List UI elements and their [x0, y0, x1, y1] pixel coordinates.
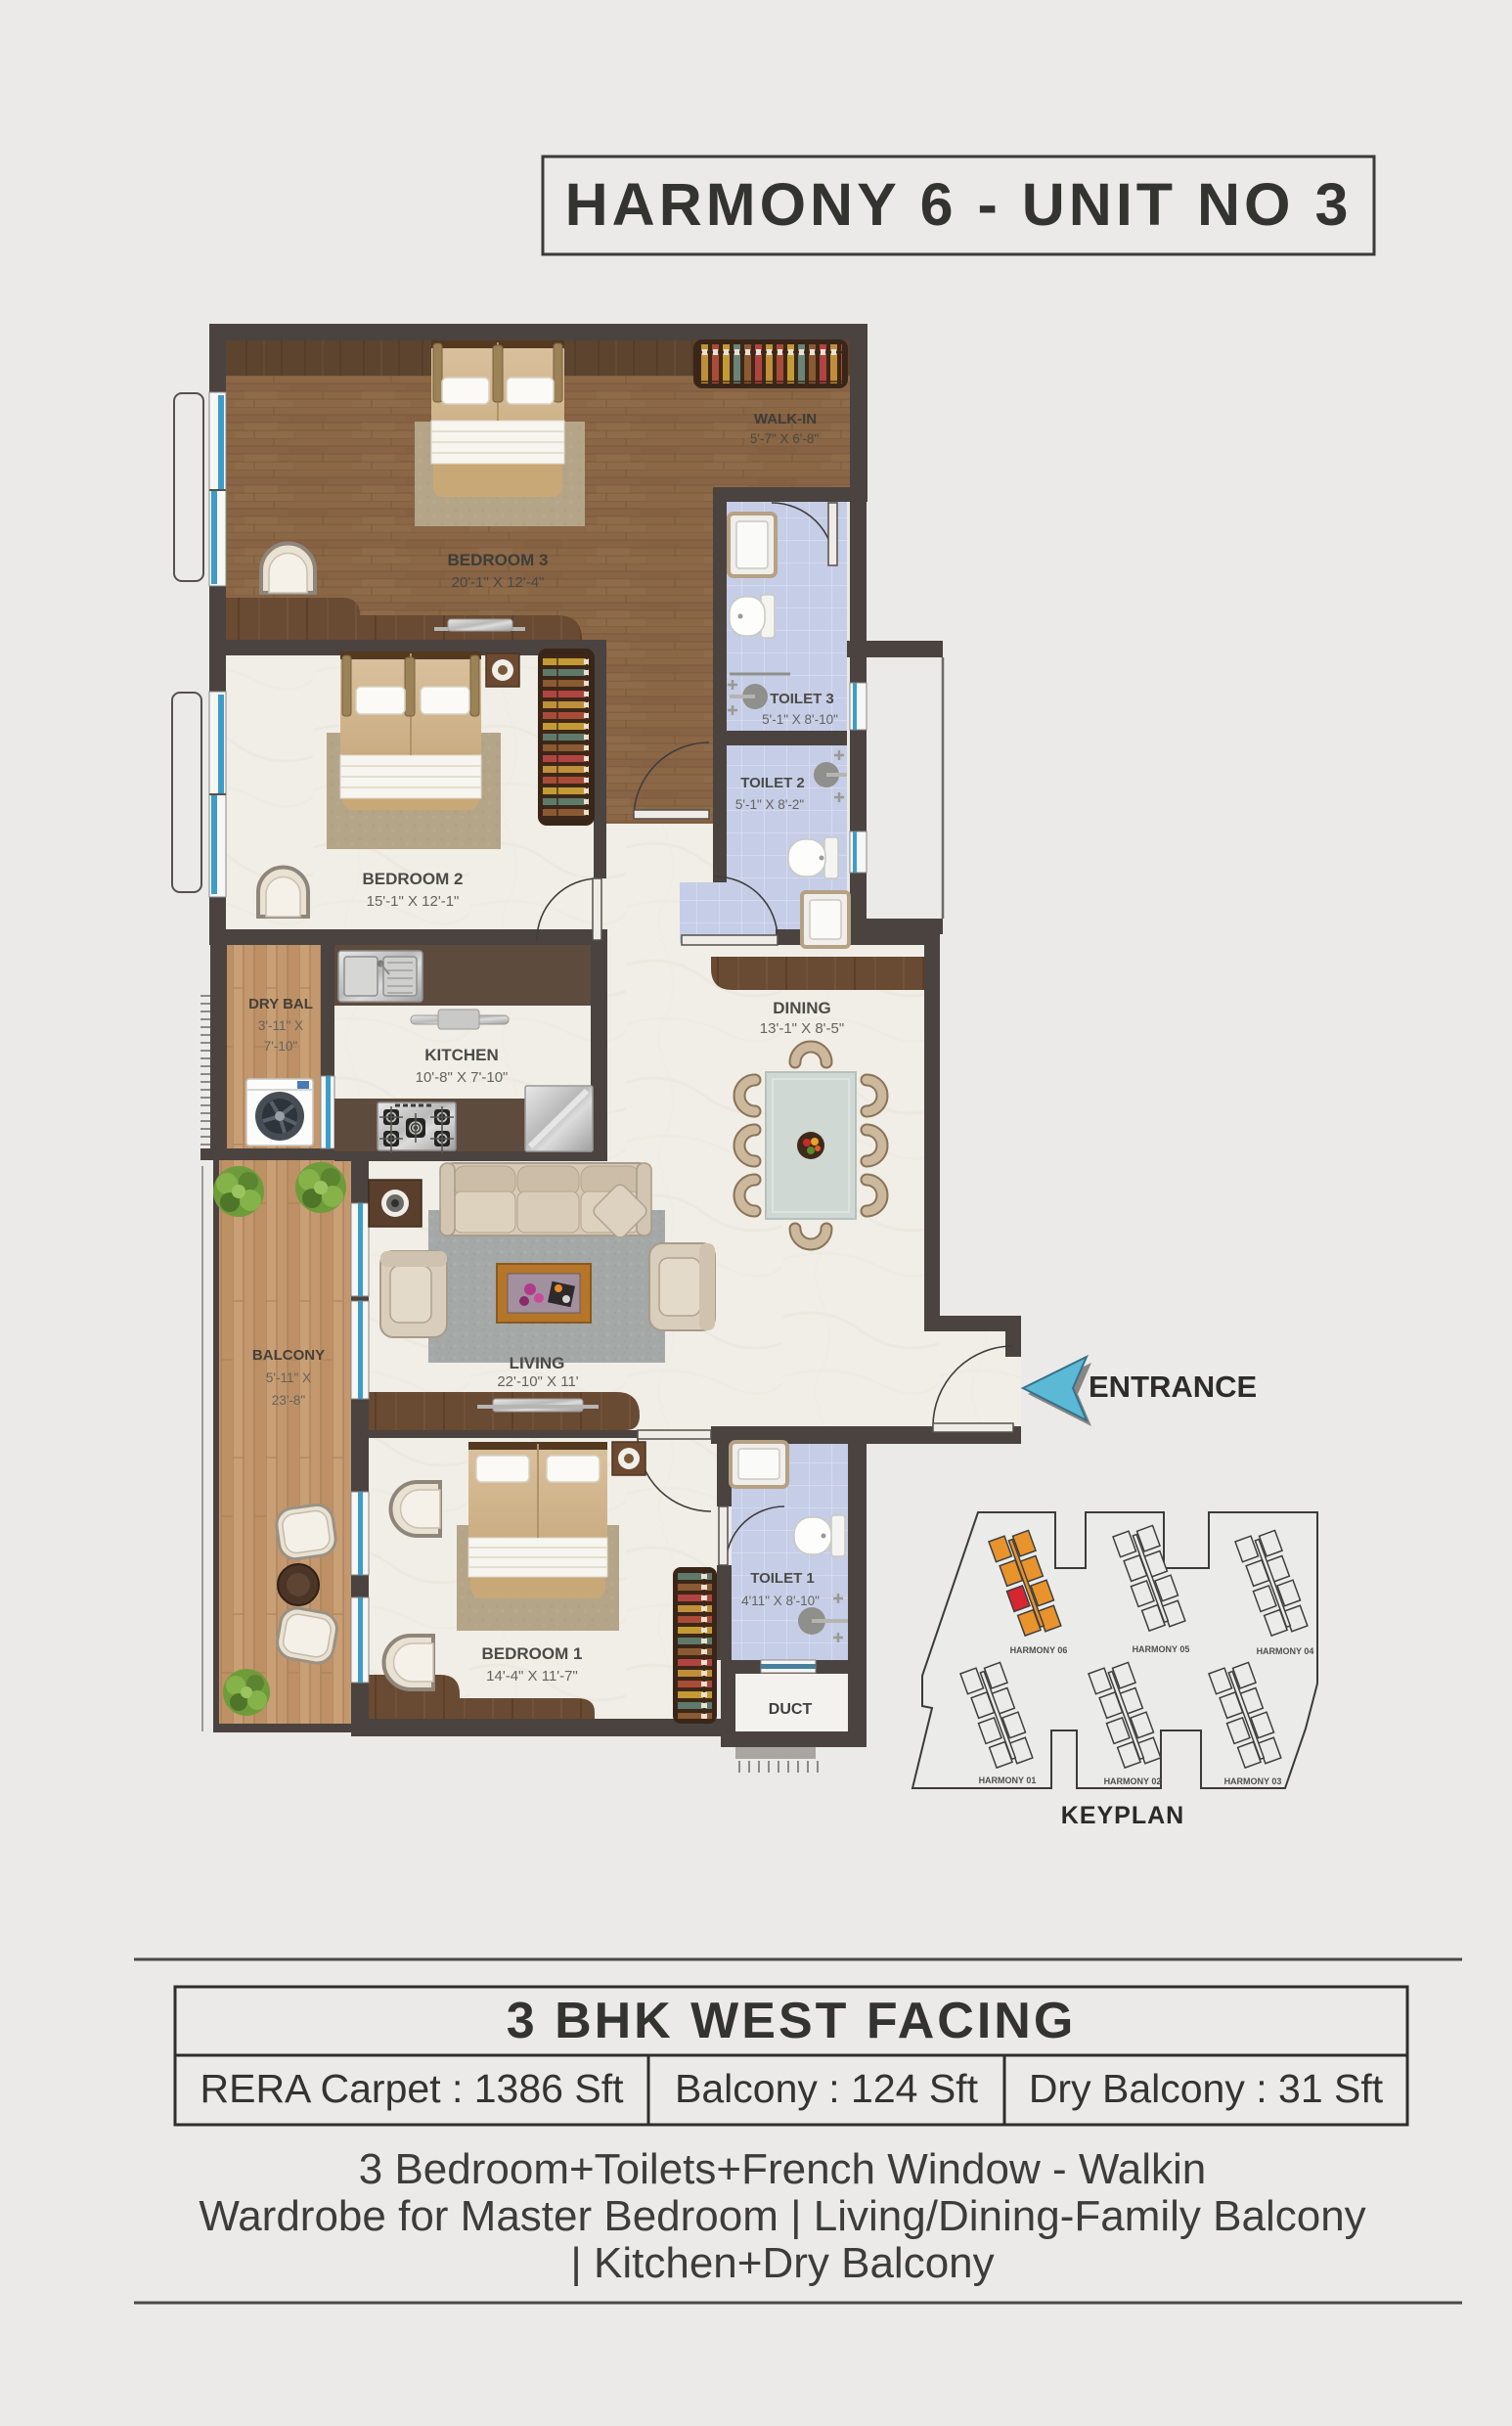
svg-text:4'11" X 8'-10": 4'11" X 8'-10": [741, 1594, 820, 1608]
svg-text:HARMONY 02: HARMONY 02: [1104, 1776, 1162, 1786]
svg-text:3 BHK WEST FACING: 3 BHK WEST FACING: [507, 1993, 1077, 2049]
svg-text:| Kitchen+Dry Balcony: | Kitchen+Dry Balcony: [570, 2239, 994, 2287]
svg-text:BEDROOM 1: BEDROOM 1: [482, 1644, 583, 1663]
svg-text:3'-11" X: 3'-11" X: [258, 1018, 303, 1033]
svg-text:HARMONY 6 - UNIT NO 3: HARMONY 6 - UNIT NO 3: [565, 171, 1353, 238]
svg-text:TOILET 2: TOILET 2: [740, 775, 805, 791]
svg-text:7'-10": 7'-10": [264, 1039, 298, 1054]
svg-text:13'-1" X 8'-5": 13'-1" X 8'-5": [760, 1020, 844, 1037]
svg-text:KITCHEN: KITCHEN: [424, 1046, 499, 1064]
svg-text:TOILET 3: TOILET 3: [770, 691, 834, 707]
svg-text:HARMONY 05: HARMONY 05: [1133, 1644, 1190, 1654]
svg-text:14'-4" X 11'-7": 14'-4" X 11'-7": [486, 1668, 578, 1685]
svg-text:HARMONY 01: HARMONY 01: [979, 1775, 1037, 1785]
svg-text:HARMONY 04: HARMONY 04: [1257, 1646, 1314, 1656]
svg-text:Dry Balcony : 31 Sft: Dry Balcony : 31 Sft: [1029, 2066, 1384, 2111]
svg-text:DRY BAL: DRY BAL: [248, 996, 313, 1012]
svg-text:HARMONY 06: HARMONY 06: [1010, 1645, 1068, 1655]
svg-text:5'-7" X 6'-8": 5'-7" X 6'-8": [750, 431, 819, 446]
svg-text:15'-1" X 12'-1": 15'-1" X 12'-1": [367, 893, 460, 910]
svg-text:Balcony : 124 Sft: Balcony : 124 Sft: [675, 2066, 979, 2111]
svg-text:22'-10" X 11': 22'-10" X 11': [497, 1373, 578, 1390]
svg-text:WALK-IN: WALK-IN: [754, 411, 817, 427]
svg-text:KEYPLAN: KEYPLAN: [1061, 1802, 1184, 1829]
svg-text:20'-1" X 12'-4": 20'-1" X 12'-4": [452, 574, 545, 591]
svg-text:Wardrobe for Master Bedroom |: Wardrobe for Master Bedroom | Living/Din…: [199, 2192, 1365, 2240]
svg-text:DINING: DINING: [773, 999, 831, 1017]
svg-text:10'-8" X 7'-10": 10'-8" X 7'-10": [416, 1069, 509, 1086]
svg-text:RERA Carpet : 1386 Sft: RERA Carpet : 1386 Sft: [200, 2066, 624, 2111]
svg-text:HARMONY 03: HARMONY 03: [1224, 1776, 1282, 1786]
svg-text:BALCONY: BALCONY: [252, 1347, 325, 1364]
svg-text:23'-8": 23'-8": [272, 1393, 306, 1408]
svg-text:5'-11" X: 5'-11" X: [266, 1370, 311, 1385]
svg-text:5'-1" X 8'-2": 5'-1" X 8'-2": [735, 797, 804, 812]
svg-text:TOILET 1: TOILET 1: [750, 1570, 815, 1587]
svg-text:5'-1" X 8'-10": 5'-1" X 8'-10": [762, 712, 838, 727]
svg-text:BEDROOM 3: BEDROOM 3: [448, 551, 549, 569]
svg-text:BEDROOM 2: BEDROOM 2: [363, 870, 464, 888]
svg-text:3 Bedroom+Toilets+French Windo: 3 Bedroom+Toilets+French Window - Walkin: [359, 2145, 1207, 2193]
svg-text:DUCT: DUCT: [769, 1701, 813, 1718]
svg-text:ENTRANCE: ENTRANCE: [1089, 1370, 1257, 1404]
svg-text:LIVING: LIVING: [510, 1354, 565, 1372]
